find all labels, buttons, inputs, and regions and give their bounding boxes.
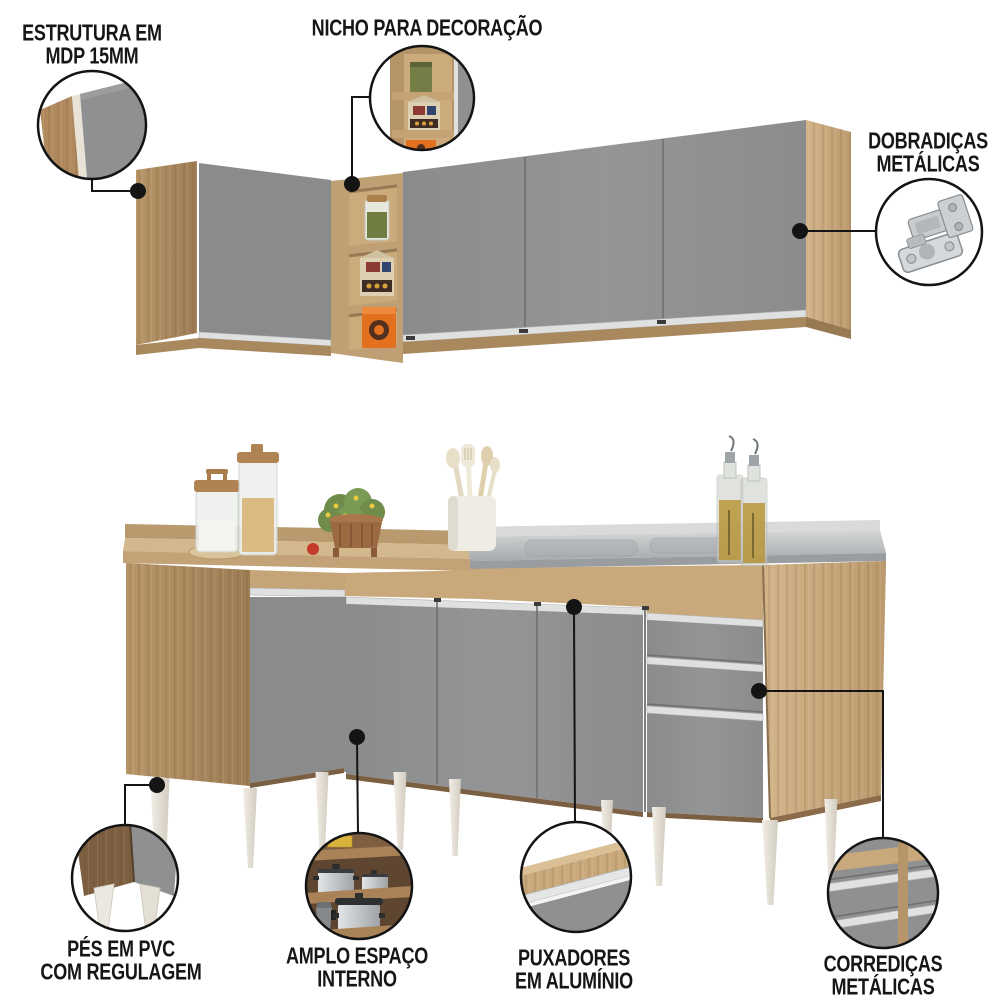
tall-canister: [237, 444, 279, 555]
dot-nicho: [344, 176, 360, 192]
dot-dobradicas: [792, 223, 808, 239]
callout-label-puxadores: PUXADORESEM ALUMÍNIO: [414, 946, 734, 992]
callout-label-dobradicas: DOBRADIÇASMETÁLICAS: [768, 129, 1000, 175]
base-cabinet-end-panel: [763, 561, 886, 818]
utensil-pot: [446, 444, 500, 551]
niche-orange-box: [362, 307, 396, 348]
oil-bottles: [717, 436, 767, 566]
callout-label-corredicas: CORREDIÇASMETÁLICAS: [723, 952, 1000, 998]
wall-cabinet-doors: [403, 120, 806, 335]
inset-interior-shelves: [306, 833, 412, 943]
callout-label-nicho: NICHO PARA DECORAÇÃO: [267, 16, 587, 39]
sink-countertop: [466, 520, 886, 569]
dot-corredicas: [751, 683, 767, 699]
inset-drawer-slides: [826, 838, 942, 950]
inset-metal-hinge: [876, 179, 982, 285]
decor-niche: [331, 173, 403, 363]
inset-decor-niche: [370, 46, 478, 152]
dot-amplo: [349, 729, 365, 745]
wall-cabinet-corner-door: [199, 163, 331, 340]
drawer-stack: [647, 613, 763, 818]
product-infographic: ESTRUTURA EMMDP 15MM NICHO PARA DECORAÇÃ…: [0, 0, 1000, 1000]
small-canister: [189, 469, 245, 559]
callout-label-estrutura: ESTRUTURA EMMDP 15MM: [0, 21, 252, 67]
base-cabinet: [123, 520, 886, 908]
dot-puxadores: [566, 599, 582, 615]
inset-pvc-feet: [72, 822, 178, 934]
base-cabinet-corner-door: [250, 597, 344, 783]
niche-herb-jar: [365, 195, 389, 240]
base-cabinet-side-panel: [126, 563, 250, 786]
dot-pes: [149, 777, 165, 793]
inset-aluminum-handle: [520, 822, 634, 936]
niche-snack-box: [360, 250, 394, 296]
dot-estrutura: [130, 183, 146, 199]
wall-cabinet: [136, 120, 851, 363]
tomato: [307, 543, 319, 555]
